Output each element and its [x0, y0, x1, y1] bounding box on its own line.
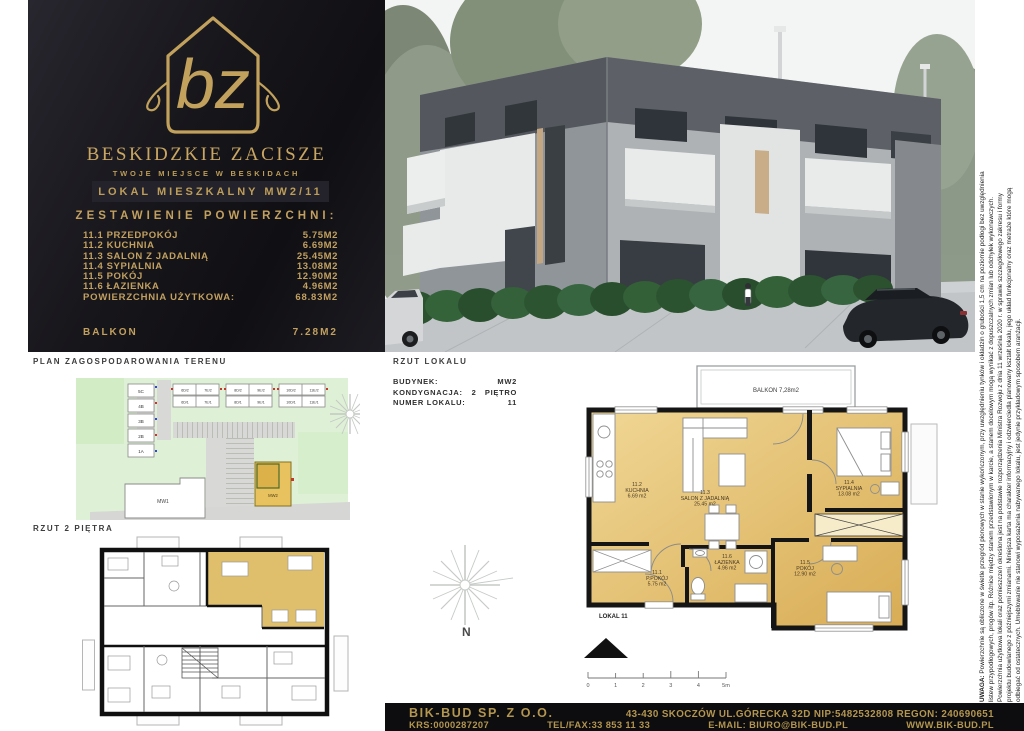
- company-website: WWW.BIK-BUD.PL: [906, 720, 994, 730]
- brand-monogram: bz: [176, 45, 250, 123]
- unit-plan-drawing: BALKON 7,28m2: [585, 362, 965, 635]
- footer-bar: BIK-BUD SP. Z O.O. 43-430 SKOCZÓW UL.GÓR…: [385, 703, 1024, 731]
- svg-text:2B: 2B: [138, 434, 144, 439]
- company-krs: KRS:0000287207: [409, 720, 489, 730]
- brand-panel: bz BESKIDZKIE ZACISZE TWOJE MIEJSCE W BE…: [28, 0, 385, 352]
- building-mw1: [125, 478, 205, 518]
- storey-plan-drawing: [82, 536, 350, 726]
- svg-text:2: 2: [642, 683, 645, 689]
- person-figure: [745, 283, 751, 306]
- company-name: BIK-BUD SP. Z O.O.: [409, 706, 554, 720]
- unit-plan-title: RZUT LOKALU: [393, 357, 467, 366]
- svg-text:9E/1: 9E/1: [257, 401, 264, 405]
- svg-text:7E/2: 7E/2: [204, 389, 211, 393]
- svg-text:1A: 1A: [138, 449, 144, 454]
- company-address: 43-430 SKOCZÓW UL.GÓRECKA 32D NIP:548253…: [626, 709, 994, 720]
- svg-text:8D/1: 8D/1: [234, 401, 242, 405]
- svg-text:8D/2: 8D/2: [234, 389, 242, 393]
- svg-text:3: 3: [669, 683, 672, 689]
- svg-text:5m: 5m: [722, 683, 730, 689]
- svg-text:9E/2: 9E/2: [257, 389, 264, 393]
- svg-text:6D/2: 6D/2: [181, 389, 189, 393]
- disclaimer-line: odbiegać od ostatecznych. Umeblowanie ni…: [1015, 4, 1024, 702]
- svg-text:6D/1: 6D/1: [181, 401, 189, 405]
- svg-text:4B: 4B: [138, 404, 144, 409]
- areas-table: 11.1 PRZEDPOKÓJ5.75M2 11.2 KUCHNIA6.69M2…: [83, 231, 338, 303]
- svg-text:4: 4: [697, 683, 700, 689]
- duplex-houses: [173, 384, 325, 407]
- legal-disclaimer: UWAGA: Powierzchnie są obliczone w świet…: [979, 4, 1024, 702]
- total-area-row: POWIERZCHNIA UŻYTKOWA:68.83M2: [83, 293, 338, 303]
- svg-text:0: 0: [586, 683, 589, 689]
- north-triangle-icon: [584, 638, 628, 658]
- info-row-storey: KONDYGNACJA:2 PIĘTRO: [393, 388, 517, 399]
- svg-text:10D/1: 10D/1: [286, 401, 296, 405]
- scale-bar: 0 1 2 3 4 5m: [580, 636, 740, 694]
- svg-text:11E/2: 11E/2: [309, 389, 318, 393]
- svg-text:5C: 5C: [138, 389, 145, 394]
- disclaimer-line: listew przypodłogowych, progów itp. Różn…: [988, 4, 997, 702]
- company-phone: TEL/FAX:33 853 11 33: [547, 720, 650, 730]
- balcony-row: BALKON7.28M2: [83, 327, 338, 338]
- disclaimer-line: UWAGA: Powierzchnie są obliczone w świet…: [979, 4, 988, 702]
- svg-text:MW2: MW2: [268, 493, 278, 498]
- footer-line-1: BIK-BUD SP. Z O.O. 43-430 SKOCZÓW UL.GÓR…: [409, 706, 994, 720]
- info-row-building: BUDYNEK:MW2: [393, 377, 517, 388]
- compass-rose-icon: N: [425, 540, 515, 640]
- brand-tagline: TWOJE MIEJSCE W BESKIDACH: [28, 169, 385, 178]
- unit-title: LOKAL MIESZKALNY MW2/11: [92, 181, 329, 202]
- site-plan-drawing: 5C 4B 3B 2B 1A 6D/27E/2 6D/17E/1 8D/29E/…: [30, 366, 360, 520]
- disclaimer-line: projektu budowlanego z późniejszymi zmia…: [1006, 4, 1015, 702]
- balcony-label: BALKON 7,28m2: [753, 388, 800, 394]
- lokal-label: LOKAL 11: [599, 614, 628, 620]
- floor-plan-title: RZUT 2 PIĘTRA: [33, 524, 113, 533]
- disclaimer-line: Powierzchnia użytkowa lokali oraz pomies…: [997, 4, 1006, 702]
- areas-heading: ZESTAWIENIE POWIERZCHNI:: [28, 210, 385, 222]
- svg-text:11E/1: 11E/1: [309, 401, 318, 405]
- company-email: E-MAIL: BIURO@BIK-BUD.PL: [708, 720, 848, 730]
- svg-text:3B: 3B: [138, 419, 144, 424]
- brand-logo-icon: bz: [138, 4, 288, 142]
- svg-text:7E/1: 7E/1: [204, 401, 211, 405]
- car-left: [385, 289, 423, 347]
- north-letter: N: [462, 625, 471, 639]
- svg-text:1: 1: [614, 683, 617, 689]
- svg-text:MW1: MW1: [157, 499, 169, 505]
- brand-name: BESKIDZKIE ZACISZE: [28, 144, 385, 166]
- info-row-number: NUMER LOKALU:11: [393, 398, 517, 409]
- apartment-card-page: bz BESKIDZKIE ZACISZE TWOJE MIEJSCE W BE…: [0, 0, 1024, 731]
- footer-line-2: KRS:0000287207 TEL/FAX:33 853 11 33 E-MA…: [409, 720, 994, 730]
- svg-text:10D/2: 10D/2: [286, 389, 296, 393]
- site-plan-title: PLAN ZAGOSPODAROWANIA TERENU: [33, 357, 227, 366]
- building-render: [385, 0, 975, 352]
- unit-info: BUDYNEK:MW2 KONDYGNACJA:2 PIĘTRO NUMER L…: [393, 377, 517, 409]
